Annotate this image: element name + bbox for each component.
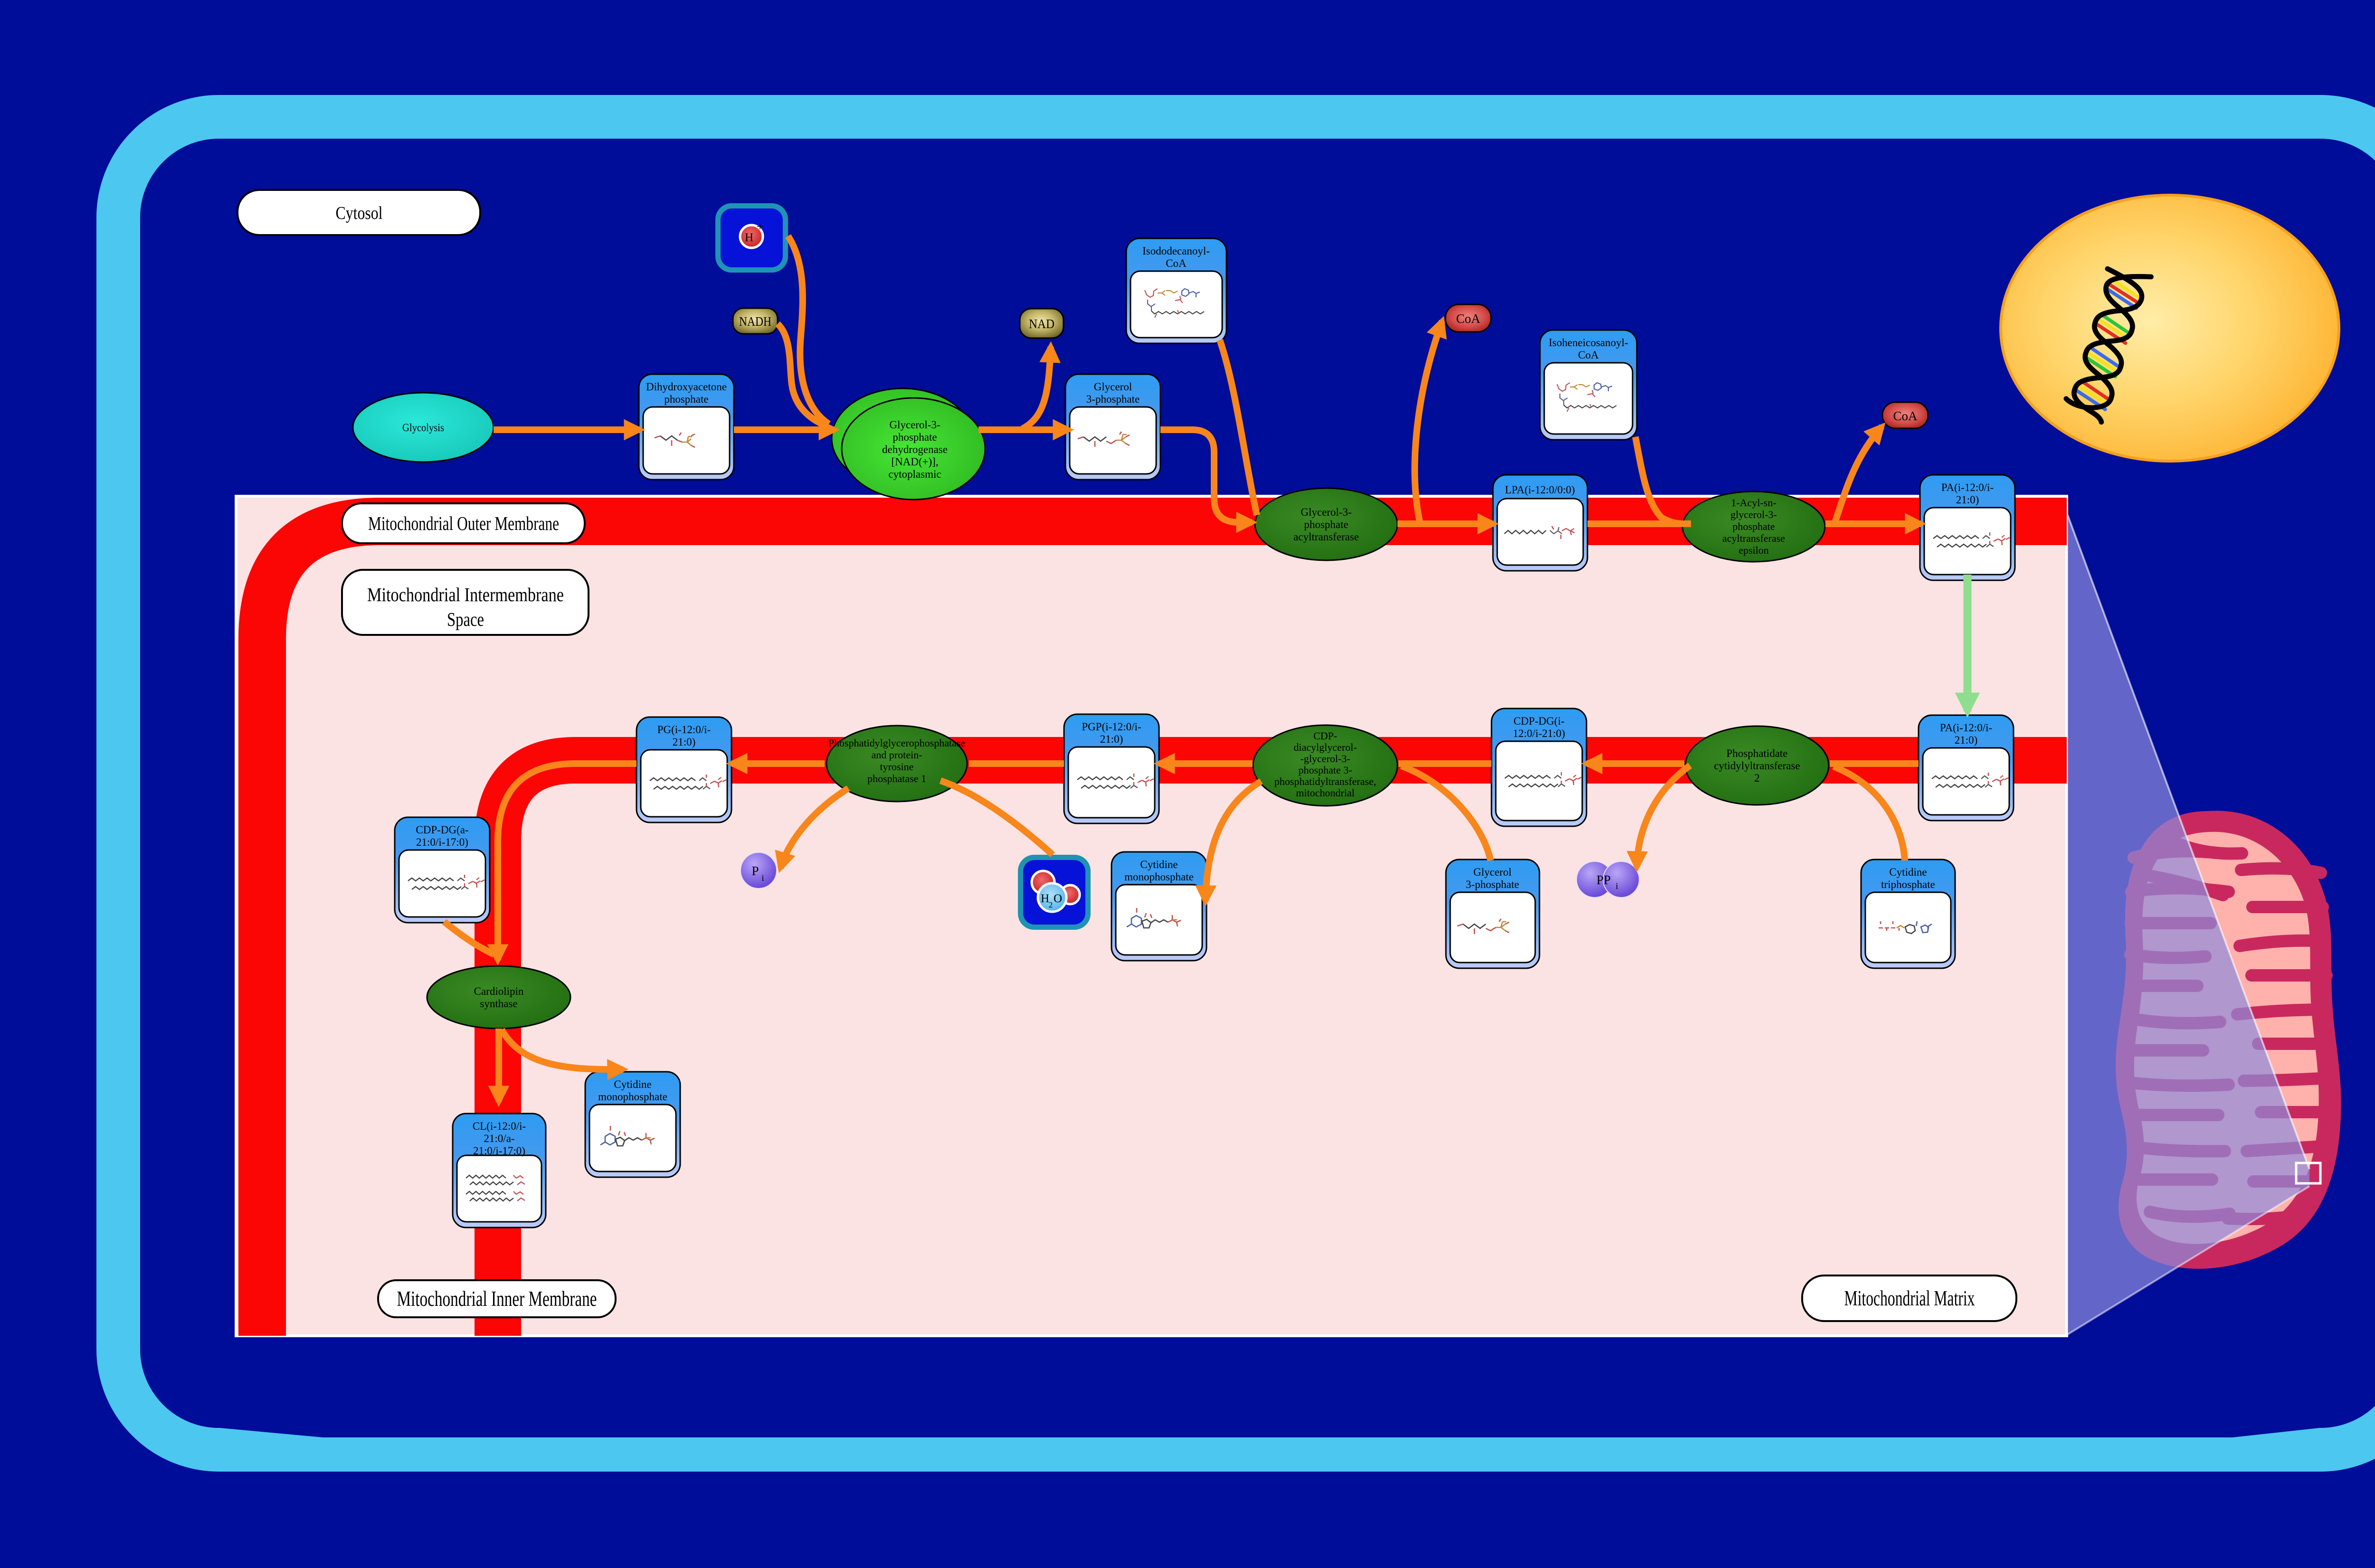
svg-text:21:0): 21:0)	[673, 736, 696, 748]
svg-text:acyltransferase: acyltransferase	[1293, 531, 1359, 543]
svg-text:Cytidine: Cytidine	[1889, 866, 1927, 878]
svg-text:Glycerol: Glycerol	[1473, 866, 1511, 878]
svg-text:Glycerol-3-: Glycerol-3-	[889, 419, 940, 431]
svg-text:CDP-: CDP-	[1313, 730, 1337, 742]
svg-text:3-phosphate: 3-phosphate	[1086, 393, 1140, 405]
svg-text:Glycolysis: Glycolysis	[402, 422, 444, 434]
svg-text:2: 2	[1754, 772, 1760, 784]
svg-text:Cardiolipin: Cardiolipin	[474, 985, 524, 997]
svg-text:cytoplasmic: cytoplasmic	[888, 468, 941, 480]
svg-text:tyrosine: tyrosine	[880, 761, 914, 773]
svg-text:glycerol-3-: glycerol-3-	[1730, 509, 1777, 520]
svg-text:O: O	[1054, 892, 1062, 905]
svg-text:H: H	[745, 231, 753, 244]
svg-text:triphosphate: triphosphate	[1881, 878, 1935, 890]
svg-text:21:0): 21:0)	[1100, 733, 1123, 745]
svg-text:2: 2	[1049, 900, 1053, 909]
svg-text:21:0/i-17:0): 21:0/i-17:0)	[473, 1145, 525, 1157]
svg-text:diacylglycerol-: diacylglycerol-	[1293, 741, 1357, 753]
svg-text:Cytidine: Cytidine	[614, 1078, 651, 1090]
svg-text:[NAD(+)],: [NAD(+)],	[891, 456, 938, 468]
svg-text:Mitochondrial Inner Membrane: Mitochondrial Inner Membrane	[397, 1287, 597, 1311]
svg-text:Phosphatidylglycerophosphatase: Phosphatidylglycerophosphatase	[828, 737, 965, 749]
svg-text:1-Acyl-sn-: 1-Acyl-sn-	[1731, 497, 1776, 509]
svg-text:P: P	[751, 864, 759, 878]
svg-text:monophosphate: monophosphate	[598, 1091, 667, 1103]
svg-text:i: i	[1615, 881, 1618, 891]
svg-text:phosphate: phosphate	[1732, 520, 1775, 532]
svg-text:Cytidine: Cytidine	[1140, 859, 1178, 870]
svg-text:CoA: CoA	[1893, 409, 1918, 423]
svg-text:21:0): 21:0)	[1955, 734, 1978, 746]
svg-text:Glycerol: Glycerol	[1094, 381, 1132, 393]
svg-text:and protein-: and protein-	[872, 749, 922, 761]
svg-text:mitochondrial: mitochondrial	[1296, 787, 1354, 799]
svg-text:Cytosol: Cytosol	[336, 203, 383, 223]
svg-text:phosphate 3-: phosphate 3-	[1298, 764, 1352, 776]
svg-text:phosphate: phosphate	[1304, 519, 1348, 530]
svg-text:phosphatidyltransferase,: phosphatidyltransferase,	[1274, 775, 1376, 787]
svg-text:21:0): 21:0)	[1956, 494, 1979, 506]
svg-text:-glycerol-3-: -glycerol-3-	[1300, 753, 1350, 765]
svg-text:epsilon: epsilon	[1738, 544, 1769, 556]
svg-text:phosphate: phosphate	[893, 431, 937, 443]
svg-text:Isoheneicosanoyl-: Isoheneicosanoyl-	[1548, 337, 1628, 349]
svg-text:acyltransferase: acyltransferase	[1722, 532, 1785, 544]
svg-text:monophosphate: monophosphate	[1124, 871, 1194, 883]
svg-text:PA(i-12:0/i-: PA(i-12:0/i-	[1940, 722, 1992, 734]
svg-text:Mitochondrial Matrix: Mitochondrial Matrix	[1844, 1286, 1975, 1310]
svg-text:PA(i-12:0/i-: PA(i-12:0/i-	[1941, 482, 1994, 493]
svg-text:Space: Space	[447, 608, 484, 630]
svg-text:12:0/i-21:0): 12:0/i-21:0)	[1513, 727, 1565, 739]
svg-text:Glycerol-3-: Glycerol-3-	[1301, 506, 1351, 518]
svg-text:dehydrogenase: dehydrogenase	[882, 444, 948, 455]
svg-text:Isododecanoyl-: Isododecanoyl-	[1142, 245, 1210, 257]
svg-text:3-phosphate: 3-phosphate	[1466, 878, 1519, 890]
svg-text:H: H	[1041, 892, 1049, 905]
svg-text:NADH: NADH	[739, 314, 771, 329]
svg-text:synthase: synthase	[480, 998, 517, 1010]
svg-text:LPA(i-12:0/0:0): LPA(i-12:0/0:0)	[1505, 484, 1575, 496]
svg-text:21:0/i-17:0): 21:0/i-17:0)	[416, 836, 468, 848]
svg-text:PP: PP	[1596, 873, 1611, 887]
svg-text:cytidylyltransferase: cytidylyltransferase	[1714, 760, 1800, 772]
svg-text:i: i	[761, 873, 764, 883]
svg-text:CDP-DG(i-: CDP-DG(i-	[1513, 715, 1564, 727]
svg-text:CDP-DG(a-: CDP-DG(a-	[416, 824, 468, 836]
svg-text:Mitochondrial Outer Membrane: Mitochondrial Outer Membrane	[368, 512, 559, 534]
svg-text:CoA: CoA	[1456, 312, 1481, 326]
svg-text:+: +	[756, 219, 763, 234]
svg-text:CoA: CoA	[1166, 257, 1187, 269]
svg-text:Dihydroxyacetone: Dihydroxyacetone	[646, 381, 727, 393]
svg-text:phosphatase 1: phosphatase 1	[867, 773, 926, 784]
svg-text:PGP(i-12:0/i-: PGP(i-12:0/i-	[1082, 721, 1141, 733]
svg-text:Phosphatidate: Phosphatidate	[1726, 747, 1787, 759]
svg-text:21:0/a-: 21:0/a-	[484, 1133, 514, 1144]
svg-text:Mitochondrial Intermembrane: Mitochondrial Intermembrane	[367, 584, 564, 605]
svg-text:CoA: CoA	[1578, 349, 1599, 361]
svg-text:CL(i-12:0/i-: CL(i-12:0/i-	[473, 1120, 526, 1132]
svg-text:NAD: NAD	[1029, 317, 1054, 331]
svg-text:phosphate: phosphate	[664, 393, 708, 405]
svg-text:PG(i-12:0/i-: PG(i-12:0/i-	[657, 724, 711, 736]
